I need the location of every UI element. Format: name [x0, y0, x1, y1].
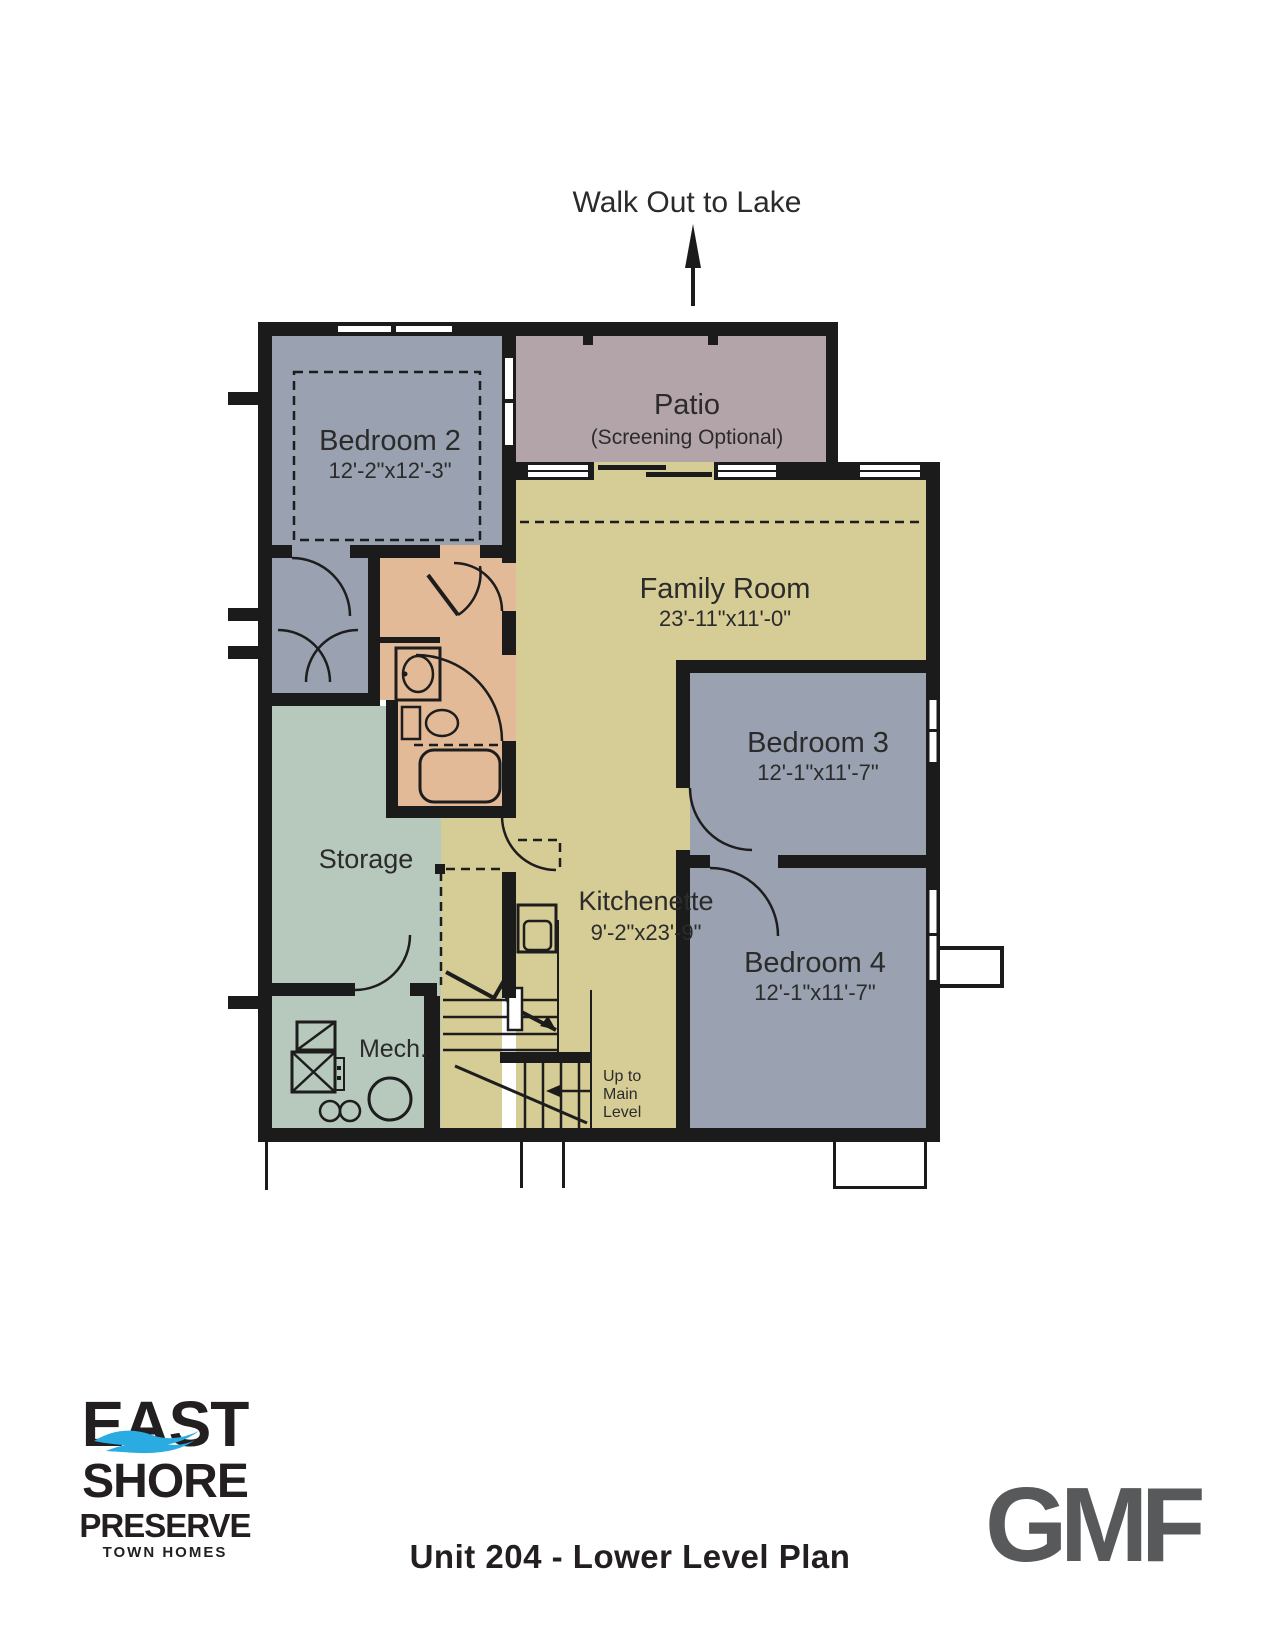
bedroom4-label: Bedroom 4: [744, 947, 886, 979]
bottom-wall: [258, 1128, 940, 1142]
family-window-1: [528, 463, 588, 479]
logo-line-east: EAST: [74, 1392, 256, 1456]
patio-sliding-door: [594, 462, 714, 480]
hall-bath-wall: [368, 545, 380, 706]
bedroom2-bottom-wall-b: [350, 545, 440, 558]
bedroom-divider-wall-a: [690, 855, 710, 868]
spine-wall-d: [502, 872, 516, 998]
bedroom3-top-wall: [676, 660, 926, 673]
bedroom2-dims: 12'-2"x12'-3": [328, 458, 451, 483]
family-room-dims: 23'-11"x11'-0": [659, 606, 791, 631]
east-shore-preserve-logo: EAST SHORE PRESERVE TOWN HOMES: [74, 1392, 256, 1560]
mech-label: Mech.: [359, 1035, 427, 1063]
bedroom-divider-wall-b: [778, 855, 926, 868]
hall-floor: [272, 552, 368, 693]
bedrooms-west-wall-a: [676, 660, 690, 788]
bedroom4-dims: 12'-1"x11'-7": [754, 980, 875, 1005]
stairs-note-3: Level: [603, 1104, 641, 1121]
bedroom2-bottom-wall-a: [272, 545, 292, 558]
family-room-floor: [516, 480, 926, 660]
plan-title: Unit 204 - Lower Level Plan: [320, 1538, 940, 1576]
bedroom3-dims: 12'-1"x11'-7": [757, 760, 878, 785]
stairs-note-2: Main: [603, 1086, 638, 1103]
family-window-2: [718, 463, 776, 479]
kitchenette-label: Kitchenette: [578, 886, 713, 916]
logo-line-preserve: PRESERVE: [74, 1509, 256, 1542]
bedroom2-label: Bedroom 2: [319, 425, 461, 457]
left-wall-tab-1: [228, 392, 260, 405]
mech-stair-wall: [424, 996, 440, 1142]
patio-post-1: [583, 336, 593, 345]
bedroom2-bottom-wall-c: [480, 545, 502, 558]
left-wall-tab-2: [228, 608, 260, 621]
walkout-arrow-icon: [685, 224, 701, 306]
gmf-logo: GMF: [985, 1472, 1245, 1578]
vanity-faucet: [403, 672, 408, 677]
patio-label: Patio: [654, 389, 720, 421]
kitchenette-dims: 9'-2"x23'-9": [591, 920, 702, 945]
hall-bottom-wall: [258, 693, 380, 706]
bathroom-floor-lower: [392, 700, 516, 818]
right-wall: [926, 462, 940, 1142]
bedroom3-label: Bedroom 3: [747, 727, 889, 759]
left-wall-tab-4: [228, 996, 260, 1009]
patio-right-wall: [826, 322, 838, 480]
mech-wall-a: [258, 983, 355, 996]
bath-lower-west-wall: [386, 700, 398, 818]
spine-wall-b: [502, 611, 516, 655]
family-room-label: Family Room: [640, 573, 811, 605]
logo-line-townhomes: TOWN HOMES: [74, 1545, 256, 1560]
patio-post-2: [708, 336, 718, 345]
bath-bottom-wall: [386, 806, 516, 818]
logo-line-shore: SHORE: [74, 1458, 256, 1506]
family-window-3: [860, 463, 920, 479]
egress-window-well: [940, 946, 1004, 988]
left-wall: [258, 322, 272, 1142]
stairs-note-1: Up to: [603, 1068, 641, 1085]
storage-floor: [272, 706, 392, 1128]
storage-dashed-node: [435, 864, 445, 874]
walkout-label: Walk Out to Lake: [573, 186, 802, 219]
bedroom2-window: [338, 324, 452, 334]
mech-wall-b: [410, 983, 437, 996]
left-wall-tab-3: [228, 646, 260, 659]
bedroom3-window: [927, 700, 939, 762]
patio-side-window: [503, 358, 515, 445]
patio-note: (Screening Optional): [591, 426, 784, 449]
bedroom4-window: [927, 890, 939, 980]
storage-label: Storage: [319, 844, 414, 874]
stair-landing-wall: [500, 1052, 590, 1063]
bath-wall-stub: [380, 637, 440, 643]
foundation-lines: [265, 1142, 927, 1190]
